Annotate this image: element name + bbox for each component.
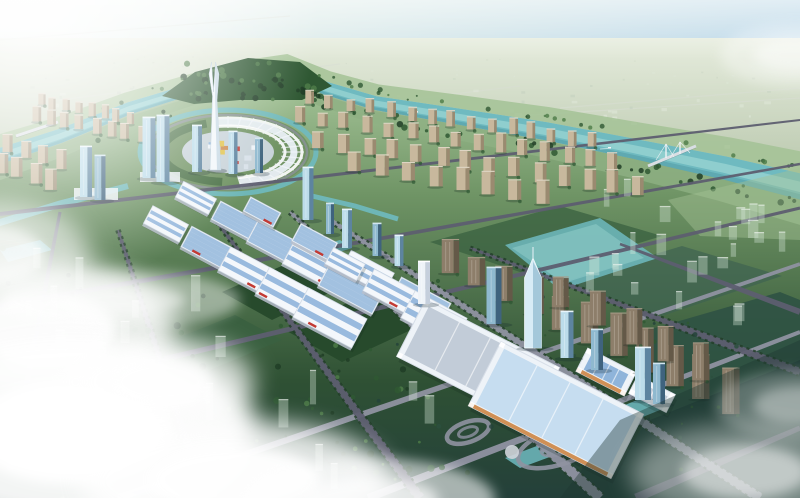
ghost-tower-cap [409, 381, 417, 382]
residential-side [669, 327, 674, 361]
ghost-tower-cap [215, 336, 225, 337]
residential-side [345, 113, 348, 127]
ghost-tower [736, 207, 745, 219]
ghost-tower-cap [736, 207, 745, 208]
residential-roof [428, 109, 437, 110]
residential-side [515, 119, 518, 134]
residential-roof [526, 121, 535, 122]
yard-tree [481, 150, 485, 154]
tower-side [378, 224, 381, 256]
tower-cap [591, 329, 603, 331]
distant-building [456, 74, 458, 75]
residential-roof [658, 326, 674, 327]
ghost-tower-cap [612, 253, 619, 254]
residential-front [632, 177, 640, 195]
ghost-tower-cap [676, 291, 682, 292]
yard-tree [358, 171, 362, 175]
residential-side [480, 259, 485, 286]
residential-side [678, 347, 683, 387]
residential-roof [610, 313, 627, 314]
residential-roof [474, 134, 484, 135]
residential-front [456, 168, 465, 190]
distant-building [570, 95, 574, 98]
distant-building [473, 90, 478, 93]
horizon-haze [0, 0, 800, 60]
residential-front [348, 153, 357, 172]
tower-side [331, 204, 334, 234]
residential-side [547, 143, 550, 161]
bank-tree [440, 99, 444, 103]
tower-side [400, 236, 403, 266]
residential-front [535, 163, 543, 182]
residential-side [446, 149, 450, 166]
distant-building [634, 61, 636, 62]
residential-roof [535, 162, 547, 163]
distant-building [371, 70, 373, 72]
residential-side [465, 168, 469, 190]
residential-front [402, 163, 411, 181]
residential-front [610, 314, 622, 356]
tower-cap [418, 261, 430, 263]
ghost-tower-cap [589, 257, 599, 258]
park-tree [320, 412, 324, 416]
ghost-tower-cap [630, 232, 635, 233]
yard-tree [311, 103, 315, 107]
distant-building [749, 115, 751, 117]
yard-tree [321, 148, 325, 152]
residential-roof [338, 112, 348, 113]
residential-roof [540, 141, 550, 142]
residential-front [547, 129, 553, 142]
residential-side [564, 278, 569, 307]
bank-tree [758, 160, 761, 163]
distant-building [674, 75, 677, 76]
residential-side [546, 181, 550, 204]
yard-tree [436, 142, 440, 146]
residential-roof [456, 167, 469, 168]
residential-side [373, 140, 377, 155]
bank-tree [407, 99, 409, 101]
residential-front [365, 139, 373, 155]
tower-cap [635, 347, 651, 349]
ghost-tower [425, 395, 435, 423]
residential-front [537, 181, 546, 204]
residential-roof [626, 308, 642, 309]
residential-front [508, 180, 517, 200]
park-tree [311, 407, 314, 410]
bank-tree [551, 149, 558, 156]
yard-tree [515, 134, 519, 138]
park-tree [275, 364, 281, 370]
distant-building [608, 110, 612, 112]
residential-side [330, 96, 333, 108]
residential-side [414, 108, 417, 121]
residential-roof [559, 165, 571, 166]
residential-front [585, 170, 593, 190]
tower-cap [487, 267, 502, 269]
residential-front [626, 309, 637, 344]
tower-side [348, 210, 352, 248]
residential-roof [509, 117, 518, 118]
ghost-tower-cap [717, 257, 728, 258]
residential-front [383, 124, 390, 137]
residential-roof [693, 342, 709, 343]
park-tree [346, 358, 350, 362]
distant-building [726, 82, 728, 84]
residential-front [526, 122, 532, 138]
aerial-city-render [0, 0, 800, 498]
park-tree [396, 343, 399, 346]
distant-building [574, 70, 575, 71]
bank-tree [588, 126, 592, 130]
ghost-tower [612, 253, 619, 270]
residential-front [387, 102, 393, 117]
ghost-tower-cap [715, 221, 721, 222]
ghost-tower-cap [729, 226, 737, 227]
residential-side [593, 170, 597, 189]
yard-tree [572, 162, 576, 166]
distant-building [767, 91, 771, 93]
boat [608, 147, 611, 149]
residential-side [473, 118, 476, 130]
residential-side [704, 344, 709, 380]
residential-front [428, 110, 434, 125]
residential-front [607, 170, 615, 192]
tower-side [425, 262, 430, 304]
residential-front [509, 118, 515, 134]
ghost-tower [656, 234, 666, 255]
bank-tree [350, 85, 354, 89]
ghost-tower [715, 221, 721, 236]
ghost-tower [589, 257, 599, 276]
bank-tree [645, 169, 651, 175]
park-tree [711, 376, 713, 378]
residential-roof [568, 130, 577, 131]
residential-roof [376, 154, 389, 155]
tower-cap [303, 167, 314, 169]
residential-side [411, 164, 415, 181]
residential-front [553, 277, 564, 307]
distant-building [697, 99, 700, 102]
residential-front [338, 135, 346, 153]
ghost-tower [698, 256, 707, 274]
bank-tree [316, 94, 321, 99]
residential-side [393, 103, 396, 117]
bank-tree [762, 159, 767, 164]
ghost-tower [758, 205, 764, 224]
residential-front [429, 126, 436, 142]
ghost-tower-cap [754, 232, 764, 233]
residential-side [494, 120, 497, 132]
ghost-tower [660, 206, 671, 222]
residential-side [416, 124, 419, 138]
tower-side [309, 168, 313, 220]
residential-front [387, 140, 395, 158]
bank-tree [579, 123, 583, 127]
residential-roof [430, 166, 443, 167]
ghost-tower-cap [735, 303, 745, 304]
bank-tree [358, 83, 363, 88]
residential-roof [547, 128, 556, 129]
residential-roof [446, 110, 455, 111]
residential-front [410, 145, 418, 162]
residential-roof [508, 179, 521, 180]
ghost-tower-cap [698, 256, 707, 257]
residential-front [409, 123, 416, 138]
ghost-tower [631, 282, 638, 294]
distant-building [514, 76, 516, 77]
yard-tree [353, 111, 357, 115]
residential-roof [408, 107, 417, 108]
yard-tree [553, 142, 557, 146]
bank-tree [378, 87, 383, 92]
residential-front [347, 100, 353, 111]
residential-front [438, 148, 446, 166]
tower-side [569, 312, 574, 358]
residential-front [588, 133, 594, 146]
park-tree [321, 354, 324, 357]
tower-cap [373, 223, 382, 225]
tower-side [598, 330, 603, 370]
residential-roof [366, 98, 375, 99]
residential-roof [338, 134, 350, 135]
yard-tree [680, 386, 684, 390]
residential-side [357, 153, 361, 171]
residential-side [452, 112, 455, 127]
residential-front [318, 114, 325, 127]
yard-tree [456, 273, 460, 277]
bank-tree [553, 116, 557, 120]
park-tree [335, 375, 339, 379]
distant-building [701, 72, 703, 74]
residential-front [446, 111, 452, 126]
residential-roof [318, 113, 328, 114]
distant-building [670, 82, 671, 83]
residential-side [574, 132, 577, 146]
residential-side [458, 133, 461, 146]
residential-side [390, 124, 393, 137]
bank-tree [347, 80, 352, 85]
residential-front [305, 91, 311, 104]
distant-building [630, 107, 633, 110]
distant-building [453, 78, 456, 79]
bank-tree [445, 133, 450, 138]
residential-side [543, 164, 547, 182]
residential-roof [305, 90, 314, 91]
yard-tree [509, 301, 513, 305]
residential-side [615, 171, 619, 193]
ghost-tower [729, 226, 737, 240]
park-tree [400, 366, 406, 372]
bank-tree [630, 168, 633, 171]
tower-side [660, 364, 665, 404]
tower-cap [653, 363, 665, 365]
residential-front [324, 96, 330, 109]
residential-side [372, 100, 375, 113]
park-tree [337, 369, 340, 372]
distant-building [740, 104, 744, 107]
bank-tree [600, 124, 605, 129]
park-tree [351, 395, 356, 400]
ghost-tower-cap [779, 232, 785, 233]
ghost-tower [687, 261, 697, 283]
park-tree [544, 334, 546, 336]
residential-front [488, 120, 494, 133]
yard-tree [345, 127, 349, 131]
bank-tree [654, 165, 659, 170]
yard-tree [615, 192, 619, 196]
ghost-tower-cap [279, 399, 289, 400]
yard-tree [418, 162, 422, 166]
ghost-tower [779, 232, 785, 252]
residential-front [540, 142, 547, 161]
residential-front [568, 131, 574, 146]
residential-side [601, 292, 606, 325]
residential-side [454, 241, 459, 274]
park-tree [364, 439, 368, 443]
park-tree [369, 348, 372, 351]
park-tree [643, 321, 646, 324]
residential-front [451, 133, 458, 147]
ghost-tower-cap [749, 203, 757, 204]
distant-building [572, 101, 578, 104]
park-tree [436, 279, 440, 283]
residential-roof [632, 176, 644, 177]
yard-tree [524, 155, 528, 159]
distant-building [623, 79, 625, 81]
distant-building [346, 63, 347, 64]
distant-building [521, 91, 525, 93]
park-tree [687, 322, 690, 325]
bank-tree [332, 76, 335, 79]
tower-cap [395, 235, 404, 237]
residential-side [369, 117, 372, 132]
yard-tree [412, 180, 416, 184]
residential-roof [438, 147, 450, 148]
residential-side [418, 146, 422, 162]
residential-roof [607, 169, 619, 170]
distant-building [370, 79, 373, 81]
park-tree [734, 344, 739, 349]
residential-front [408, 108, 414, 121]
bank-tree [425, 129, 428, 132]
distant-building [652, 72, 655, 74]
residential-front [468, 258, 480, 285]
tower-cap [561, 311, 574, 313]
bank-tree [684, 140, 689, 145]
residential-front [585, 150, 592, 166]
ghost-tower [409, 381, 417, 400]
residential-roof [468, 257, 485, 258]
residential-side [640, 178, 644, 195]
residential-roof [537, 180, 550, 181]
distant-building [590, 85, 593, 87]
distant-building [422, 65, 424, 66]
bank-tree [486, 107, 491, 112]
residential-roof [402, 162, 415, 163]
residential-side [325, 114, 328, 126]
residential-side [434, 110, 437, 124]
bank-tree [562, 118, 566, 122]
residential-roof [451, 132, 461, 133]
ghost-tower [749, 203, 757, 220]
residential-front [658, 327, 669, 361]
ghost-tower-cap [425, 395, 435, 396]
residential-side [567, 167, 571, 186]
tree [318, 74, 321, 77]
hall-forecourt [505, 445, 519, 459]
ghost-tower [717, 257, 728, 268]
ghost-tower-cap [758, 205, 764, 206]
bank-tree [617, 164, 622, 169]
park-tree [304, 401, 309, 406]
bank-tree [387, 94, 389, 96]
tower-side [645, 348, 651, 400]
residential-side [637, 310, 642, 345]
park-tree [374, 375, 379, 380]
residential-roof [588, 132, 597, 133]
residential-front [496, 133, 503, 152]
ghost-tower [630, 232, 635, 254]
ghost-tower [310, 370, 316, 405]
distant-building [764, 101, 771, 104]
residential-side [346, 135, 350, 153]
ghost-tower-cap [731, 243, 736, 244]
bank-tree [544, 115, 546, 117]
residential-roof [383, 123, 393, 124]
bank-tree [697, 173, 703, 179]
residential-side [517, 181, 521, 200]
residential-roof [429, 125, 439, 126]
bank-tree [532, 141, 536, 145]
residential-roof [348, 152, 361, 153]
ghost-tower-cap [631, 282, 638, 283]
residential-side [507, 267, 512, 301]
boat-wake [600, 149, 608, 150]
ghost-tower-cap [656, 234, 666, 235]
bank-tree [416, 95, 418, 97]
yard-tree [565, 307, 569, 311]
residential-roof [324, 95, 333, 96]
distant-building [647, 83, 649, 84]
residential-front [474, 135, 481, 150]
residential-roof [312, 131, 324, 132]
residential-front [559, 166, 567, 186]
residential-roof [387, 139, 399, 140]
yard-tree [517, 176, 521, 180]
residential-side [614, 154, 617, 170]
distant-building [612, 110, 618, 113]
ghost-tower-cap [310, 370, 316, 371]
residential-side [353, 101, 356, 111]
park-tree [394, 387, 401, 394]
ghost-tower-cap [733, 306, 742, 307]
ghost-tower [676, 291, 682, 309]
residential-side [592, 151, 595, 166]
distant-building [732, 75, 735, 76]
residential-roof [488, 119, 497, 120]
ghost-tower-cap [660, 206, 671, 207]
residential-front [430, 167, 439, 186]
tower-cap [342, 209, 352, 211]
yard-tree [393, 117, 397, 121]
residential-roof [590, 291, 606, 292]
residential-side [594, 134, 597, 147]
residential-side [311, 91, 314, 103]
residential-roof [387, 101, 396, 102]
ghost-tower [731, 243, 736, 257]
residential-side [302, 108, 305, 123]
